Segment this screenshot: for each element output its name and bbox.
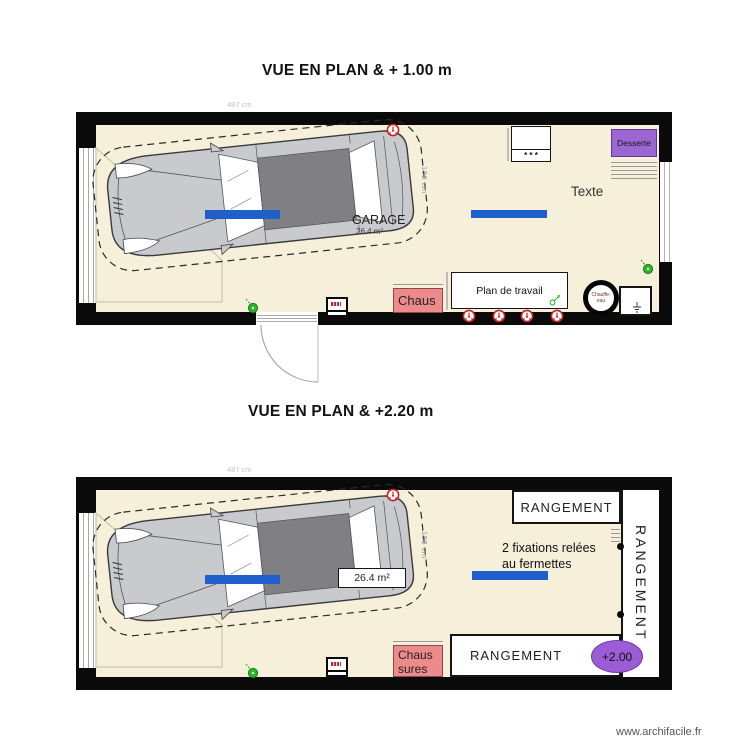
outlet-icon [520, 309, 534, 323]
plan1-room-area: 26,4 m² [356, 227, 383, 236]
outlet-icon [386, 123, 400, 137]
outlet-icon [550, 309, 564, 323]
storage-side-label: RANGEMENT [633, 525, 649, 641]
storage-hatch-lines [611, 526, 620, 542]
light-icon [243, 662, 261, 680]
watermark: www.archifacile.fr [616, 726, 702, 738]
plan1-door-leaf [257, 313, 317, 324]
desserte-label: Desserte [617, 138, 651, 148]
plan1-room-name: GARAGE [352, 213, 406, 227]
floor-plan-page: VUE EN PLAN & + 1.00 m 487 cm [0, 0, 750, 750]
storage-box-top: RANGEMENT [512, 490, 621, 524]
outlet-icon [386, 488, 400, 502]
electrical-box [326, 297, 348, 317]
plan1-window [660, 162, 672, 262]
light-icon [638, 258, 656, 276]
electrical-box [326, 657, 348, 677]
elevation-badge: +2.00 [591, 640, 643, 673]
shoes-label-line1: Chaus [398, 648, 442, 662]
car-top-view [86, 112, 436, 276]
desserte-box: Desserte [611, 129, 657, 157]
worktop-label: Plan de travail [476, 285, 543, 297]
water-heater: Chauffe- eau [583, 280, 619, 316]
shoes-box: Chaus sures [393, 645, 443, 677]
shelf-lines [611, 159, 657, 181]
plan2-top-dimension: 487 cm [227, 465, 252, 474]
storage-bottom-label: RANGEMENT [470, 648, 562, 663]
fixation-note-line2: au fermettes [502, 557, 571, 571]
plan1-workbench-car [205, 210, 280, 219]
fixation-note-line1: 2 fixations relées [502, 541, 596, 555]
outlet-icon [462, 309, 476, 323]
plan1-door-opening [256, 312, 318, 325]
plan2-workbench-car [205, 575, 280, 584]
electrical-box-strip [328, 310, 346, 312]
plan1-text-label: Texte [571, 184, 603, 199]
ground-symbol-icon [629, 301, 645, 313]
electrical-box-strip [328, 670, 346, 672]
water-heater-label-2: eau [588, 298, 614, 304]
plan2-workbench-right [472, 571, 548, 580]
plan1-top-dimension: 487 cm [227, 100, 252, 109]
electrical-box-mark [331, 662, 341, 666]
car-top-view [86, 477, 436, 641]
plan2-area-box: 26.4 m² [338, 568, 406, 588]
shoes-shelf-lines [393, 281, 443, 288]
storage-top-label: RANGEMENT [520, 500, 612, 515]
plan1-side-dimension: 188 cm [420, 166, 429, 194]
light-icon [243, 297, 261, 315]
worktop-divider [446, 272, 448, 310]
elevation-label: +2.00 [602, 650, 632, 664]
plan1-wall-return [507, 128, 509, 161]
fixture-box [619, 286, 652, 316]
plan1-title: VUE EN PLAN & + 1.00 m [262, 62, 452, 80]
worktop-box: Plan de travail [451, 272, 568, 309]
plan2-side-dimension: 188 cm [420, 531, 429, 559]
shoes-label-line2: sures [398, 662, 442, 676]
fixation-dot [617, 611, 624, 618]
shoes-box: Chaus [393, 288, 443, 313]
freezer-box: * * * [511, 126, 551, 162]
plan2-title: VUE EN PLAN & +2.20 m [248, 403, 434, 421]
switch-icon [548, 293, 562, 306]
fixation-dot [617, 543, 624, 550]
electrical-box-mark [331, 302, 341, 306]
outlet-icon [492, 309, 506, 323]
shoes-shelf-lines [393, 638, 443, 645]
plan2-area-label: 26.4 m² [354, 572, 390, 584]
freezer-star-marks: * * * [512, 149, 550, 161]
plan1-workbench-right [471, 210, 547, 218]
shoes-label: Chaus [398, 293, 436, 308]
plan1-door-swing-arc [256, 325, 320, 385]
